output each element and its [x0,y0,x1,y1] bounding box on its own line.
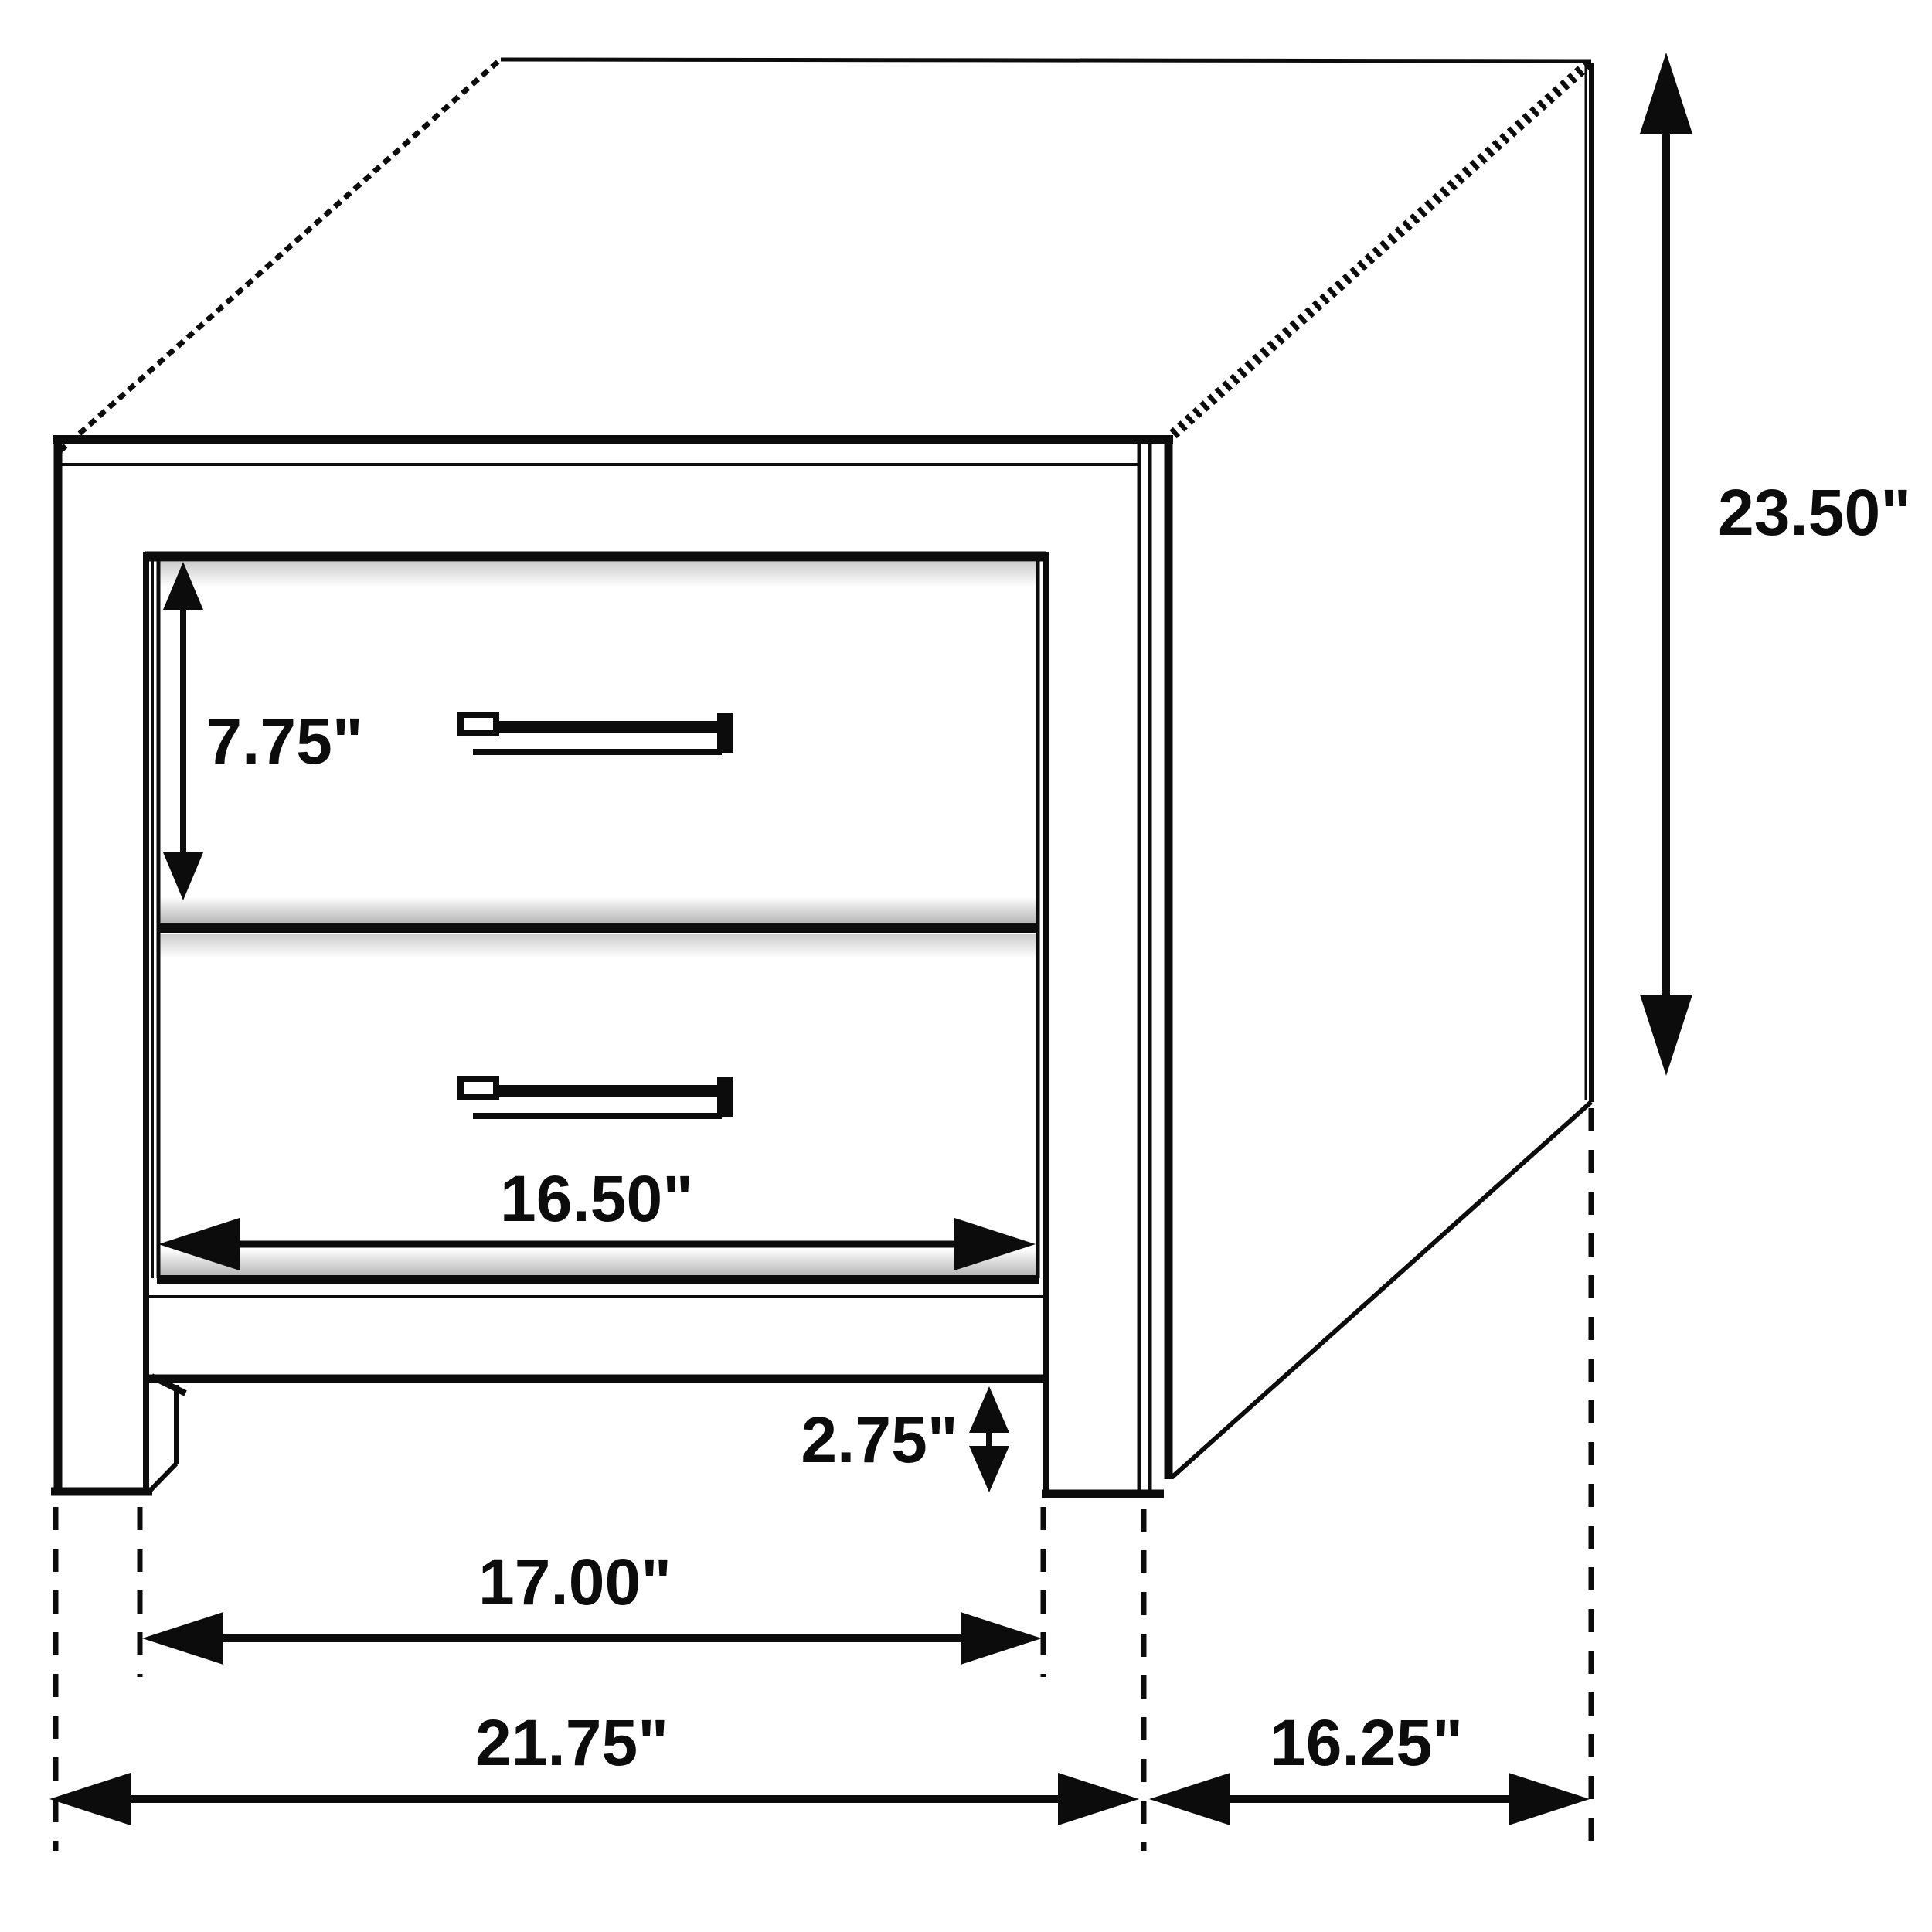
overall-depth-label: 16.25" [1270,1706,1463,1779]
drawer-2-bottom-shadow [159,1249,1037,1277]
overall-width-arrow [49,1773,1139,1825]
overall-width-label: 21.75" [475,1706,668,1779]
drawer-width-label: 16.50" [500,1162,693,1235]
left-leg-facet-chamfer [150,1464,176,1491]
diagram-canvas: 7.75" 23.50" 16.50" 2.75" 17.00" 21.75" … [0,0,1932,1932]
between-legs-arrow [142,1612,1042,1665]
handle-right-cap [717,713,733,753]
drawer-2-top-shadow [159,934,1037,958]
drawer-height-label: 7.75" [206,705,362,777]
overall-depth-arrow [1149,1773,1590,1825]
overall-height-label: 23.50" [1718,476,1911,549]
drawer-1-bottom-shadow [159,896,1037,924]
top-back-edge [501,60,1591,61]
handle-left-tab [461,1079,496,1097]
nightstand-dimension-diagram: 7.75" 23.50" 16.50" 2.75" 17.00" 21.75" … [0,0,1932,1932]
leg-clearance-label: 2.75" [801,1403,957,1476]
front-left-leg [56,1383,152,1493]
handle-left-tab [461,715,496,733]
leg-clearance-arrow [969,1386,1009,1492]
handle-right-cap [717,1077,733,1117]
overall-height-arrow [1640,53,1692,1076]
between-legs-label: 17.00" [478,1546,672,1618]
drawer-1-top-shadow [159,562,1037,587]
